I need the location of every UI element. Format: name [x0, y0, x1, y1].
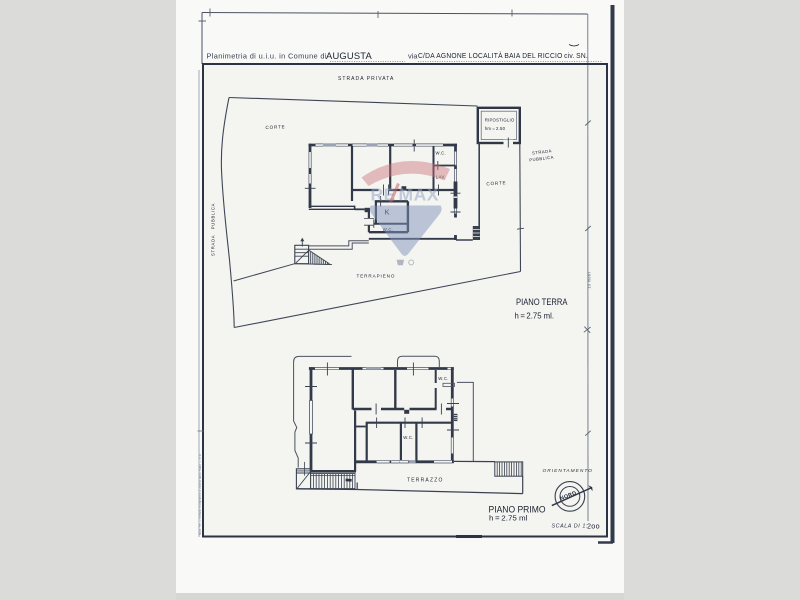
svg-text:PIANO PRIMO: PIANO PRIMO — [489, 504, 546, 514]
svg-text:via: via — [408, 52, 418, 61]
svg-text:Planimetria di u.i.u. in C: Planimetria di u.i.u. in Comune di — [207, 52, 327, 61]
svg-text:RIPOSTIGLIO: RIPOSTIGLIO — [485, 117, 515, 122]
svg-text:10 metri: 10 metri — [587, 272, 592, 288]
svg-text:TERRAZZO: TERRAZZO — [407, 478, 444, 484]
svg-text:MAX: MAX — [399, 185, 439, 205]
svg-text:AUGUSTA: AUGUSTA — [326, 51, 372, 61]
svg-text:W.C.: W.C. — [438, 376, 449, 381]
svg-text:C/DA AGNONE LOCALITÀ BAIA DEL: C/DA AGNONE LOCALITÀ BAIA DEL RICCIO civ… — [418, 51, 588, 60]
svg-text:hm = 2.50: hm = 2.50 — [485, 126, 506, 131]
svg-text:Mod. 55 — Istituto Poligrafico: Mod. 55 — Istituto Poligrafico e Zecca d… — [198, 453, 202, 535]
svg-text:ORIENTAMENTO: ORIENTAMENTO — [543, 468, 594, 474]
svg-text:STRADA PUBBLICA: STRADA PUBBLICA — [211, 203, 216, 256]
svg-text:PIANO TERRA: PIANO TERRA — [516, 297, 568, 307]
svg-text:W.C.: W.C. — [403, 435, 414, 440]
svg-text:2oo: 2oo — [587, 522, 600, 531]
svg-text:TERRAPIENO: TERRAPIENO — [357, 274, 396, 279]
svg-text:W.C.: W.C. — [436, 151, 447, 156]
svg-text:h = 2.75 ml.: h = 2.75 ml. — [515, 312, 555, 321]
svg-text:STRADA PRIVATA: STRADA PRIVATA — [338, 76, 394, 82]
svg-text:h = 2.75 ml: h = 2.75 ml — [489, 515, 528, 522]
svg-text:SCALA DI 1:: SCALA DI 1: — [552, 524, 588, 530]
svg-text:CORTE: CORTE — [265, 124, 285, 130]
